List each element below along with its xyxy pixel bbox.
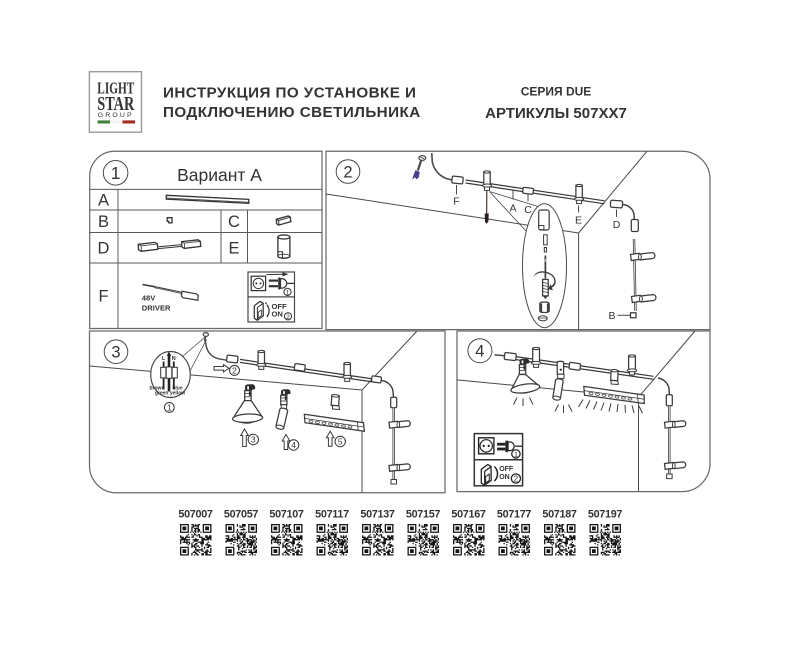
svg-text:3: 3	[251, 435, 256, 445]
svg-text:Вариант А: Вариант А	[177, 165, 262, 185]
svg-text:507007: 507007	[178, 509, 213, 521]
svg-text:B: B	[608, 310, 615, 322]
svg-text:DRIVER: DRIVER	[142, 304, 171, 313]
svg-text:B: B	[98, 213, 109, 231]
svg-text:2: 2	[232, 366, 237, 376]
svg-text:ИНСТРУКЦИЯ ПО УСТАНОВКЕ И: ИНСТРУКЦИЯ ПО УСТАНОВКЕ И	[163, 85, 416, 102]
svg-text:5: 5	[338, 437, 343, 447]
svg-text:E: E	[575, 215, 582, 227]
svg-text:4: 4	[291, 440, 296, 450]
svg-text:ПОДКЛЮЧЕНИЮ СВЕТИЛЬНИКА: ПОДКЛЮЧЕНИЮ СВЕТИЛЬНИКА	[163, 104, 421, 121]
svg-text:507107: 507107	[269, 509, 304, 521]
svg-text:ON: ON	[272, 309, 283, 318]
svg-text:2: 2	[286, 314, 290, 321]
svg-text:GROUP: GROUP	[98, 112, 134, 119]
svg-text:F: F	[98, 288, 108, 306]
svg-text:АРТИКУЛЫ 507XX7: АРТИКУЛЫ 507XX7	[485, 105, 627, 122]
svg-text:1: 1	[514, 450, 518, 459]
svg-text:507157: 507157	[406, 509, 441, 521]
svg-text:C: C	[524, 204, 532, 216]
svg-text:2: 2	[343, 164, 352, 182]
svg-text:3: 3	[111, 344, 120, 362]
svg-text:507167: 507167	[451, 509, 486, 521]
svg-text:L: L	[162, 356, 166, 362]
svg-text:1: 1	[167, 402, 172, 412]
svg-text:E: E	[228, 240, 239, 258]
svg-text:A: A	[509, 203, 516, 215]
svg-text:507137: 507137	[360, 509, 395, 521]
svg-text:507177: 507177	[497, 509, 532, 521]
svg-text:D: D	[613, 219, 621, 231]
svg-text:СЕРИЯ DUE: СЕРИЯ DUE	[521, 85, 592, 99]
svg-text:507187: 507187	[542, 509, 577, 521]
svg-text:green yellow: green yellow	[155, 391, 185, 397]
svg-text:1: 1	[111, 163, 121, 183]
svg-text:507117: 507117	[315, 509, 349, 521]
svg-text:OFF: OFF	[499, 466, 514, 473]
svg-text:C: C	[228, 213, 240, 231]
svg-text:1: 1	[286, 290, 290, 297]
svg-text:4: 4	[475, 343, 484, 361]
svg-text:D: D	[98, 240, 110, 258]
svg-text:F: F	[453, 196, 459, 208]
svg-text:A: A	[98, 192, 109, 210]
svg-text:507197: 507197	[588, 509, 623, 521]
svg-text:2: 2	[514, 475, 518, 484]
svg-text:ON: ON	[499, 474, 510, 481]
svg-text:507057: 507057	[224, 509, 259, 521]
svg-text:48V: 48V	[142, 294, 156, 303]
svg-text:N: N	[172, 356, 176, 362]
